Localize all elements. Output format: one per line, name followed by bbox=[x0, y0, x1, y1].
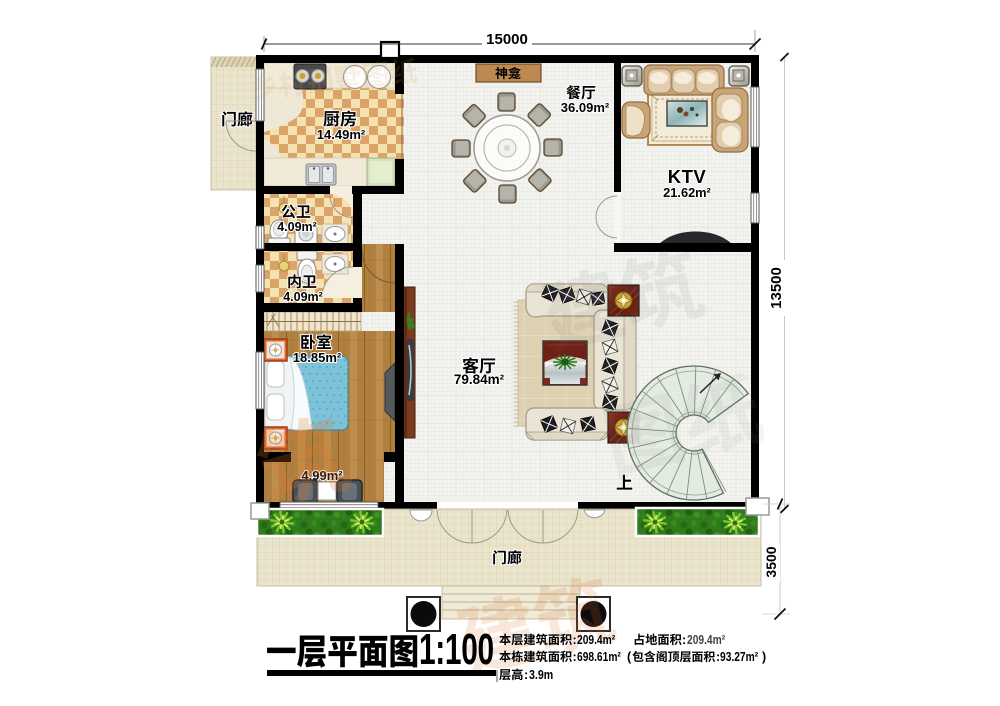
svg-text:13500: 13500 bbox=[768, 267, 785, 309]
svg-text:18.85m²: 18.85m² bbox=[293, 350, 342, 365]
svg-text:21.62m²: 21.62m² bbox=[663, 185, 711, 200]
svg-text:15000: 15000 bbox=[486, 31, 528, 48]
svg-text::: : bbox=[682, 633, 686, 647]
svg-text:3500: 3500 bbox=[763, 546, 779, 577]
svg-text::: : bbox=[524, 668, 528, 682]
svg-text:): ) bbox=[762, 650, 766, 664]
svg-text:KTV: KTV bbox=[668, 166, 707, 187]
svg-text:209.4m²: 209.4m² bbox=[577, 634, 615, 647]
svg-text:3.9m: 3.9m bbox=[529, 668, 553, 682]
svg-text::: : bbox=[573, 633, 577, 647]
svg-text:1:100: 1:100 bbox=[419, 624, 494, 673]
svg-text:79.84m²: 79.84m² bbox=[454, 372, 505, 387]
svg-text:4.09m²: 4.09m² bbox=[277, 220, 317, 234]
svg-text:698.61m²: 698.61m² bbox=[577, 651, 621, 664]
svg-text:14.49m²: 14.49m² bbox=[317, 127, 366, 142]
svg-text:36.09m²: 36.09m² bbox=[561, 100, 610, 115]
svg-text:93.27m²: 93.27m² bbox=[720, 651, 758, 664]
svg-text::: : bbox=[573, 650, 577, 664]
svg-text:4.09m²: 4.09m² bbox=[283, 290, 323, 304]
svg-text:209.4m²: 209.4m² bbox=[687, 634, 725, 647]
